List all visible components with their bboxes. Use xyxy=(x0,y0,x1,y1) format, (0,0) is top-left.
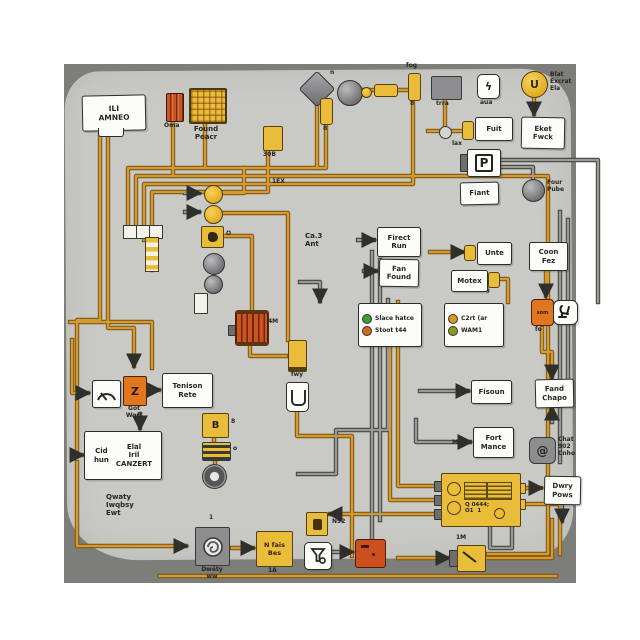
legend2-row2-text: WAM1 xyxy=(461,328,482,334)
legend2-row2: WAM1 xyxy=(448,326,482,336)
seat-icon xyxy=(553,300,578,325)
label-dwry-pows: Dwry Pows xyxy=(544,476,582,506)
finned-heater xyxy=(235,310,269,346)
note-1ex: 1EX xyxy=(272,179,285,186)
label-tenison: Tenison Rete xyxy=(162,373,213,408)
indicator-gray-2 xyxy=(204,275,223,294)
z-module: Z xyxy=(123,376,147,406)
capsule-canister xyxy=(288,340,307,372)
note-lax: lax xyxy=(452,141,462,148)
legend-box-2: C2rt (ar WAM1 xyxy=(444,303,504,347)
motor-icon-top xyxy=(337,80,363,106)
legend1-row2-text: Stoot t44 xyxy=(375,328,407,334)
folder-component xyxy=(263,126,283,151)
striped-resistor-label: Oma xyxy=(164,123,179,130)
gauge-icon xyxy=(92,380,121,408)
olive-dot-icon xyxy=(448,326,458,336)
ecu-grille xyxy=(464,482,512,500)
small-connector-block xyxy=(194,293,208,314)
nfais-label: 1A xyxy=(268,568,277,575)
switch-box xyxy=(457,545,486,572)
label-fiant: Fiant xyxy=(460,182,499,206)
nfais-box: N fais Bes xyxy=(256,531,293,567)
legend1-row1: Slace hatce xyxy=(362,314,414,324)
b-fuse-note: 8 xyxy=(231,419,235,426)
u-indicator-icon: U xyxy=(521,71,548,98)
coil-box-label: Dwéty ww xyxy=(193,567,231,581)
gauge-glyph xyxy=(96,385,117,403)
motor-right-note: Four Pube xyxy=(547,180,564,194)
motor-icon-right xyxy=(522,179,545,202)
swirl-note: Chat 902 Cnho xyxy=(558,437,575,458)
bolt-icon-label: aua xyxy=(480,100,492,107)
relay-gray-box xyxy=(431,76,462,100)
fuse-capsule-2-top-label: fog xyxy=(406,63,417,70)
note-qwaty: Qwaty Iwqbsy Ewt xyxy=(106,493,134,517)
coil-glyph xyxy=(201,535,225,559)
switch-note: 1M xyxy=(456,535,466,542)
mini-module-glyph xyxy=(313,519,322,530)
green-dot-icon xyxy=(362,314,372,324)
ecu-ring-3 xyxy=(494,508,505,519)
ecu-box: Q 0444; O1 1 xyxy=(441,473,521,527)
label-unte: Unte xyxy=(477,242,512,265)
label-canzert: Cid hun Elal Iril CANZERT xyxy=(84,431,162,480)
seat-glyph xyxy=(557,304,574,321)
control-unit-box: ILI AMNEO xyxy=(82,94,147,131)
funnel-glyph xyxy=(309,547,327,565)
note-ca3: Ca.3 Ant xyxy=(305,232,322,248)
fuse-grid-label: Found Peacr xyxy=(185,125,227,141)
legend2-row1-text: C2rt (ar xyxy=(461,316,487,322)
amber-dot-icon xyxy=(448,314,458,324)
switch-glyph xyxy=(458,546,482,568)
label-fand-chapo: Fand Chapo xyxy=(535,379,575,409)
heater-label: 4M xyxy=(268,319,278,326)
label-coon-fez: Coon Fez xyxy=(529,242,568,271)
ecu-grille-divider xyxy=(486,482,488,498)
ecu-ring-2 xyxy=(447,501,461,515)
control-unit-tab xyxy=(98,128,124,137)
striped-resistor xyxy=(166,93,184,122)
z-module-label: Got Wort xyxy=(118,406,150,420)
sensor-blob-glyph xyxy=(208,232,218,242)
sensor-square-note: O xyxy=(226,231,231,238)
sensor-square-icon xyxy=(201,226,224,248)
u-indicator-note: Blat Excrat Ela xyxy=(550,72,571,93)
folder-label: 30B xyxy=(263,152,276,159)
fuse-capsule-1 xyxy=(320,98,333,125)
b-fuse-box: B xyxy=(202,413,229,438)
orange-module-note: fo xyxy=(535,327,542,334)
terminal-dot xyxy=(361,87,372,98)
label-fort-mance: Fort Mance xyxy=(473,427,514,458)
legend-box-1: Slace hatce Stoot t44 xyxy=(358,303,422,347)
ecu-ring-1 xyxy=(447,482,461,496)
fuse-capsule-2 xyxy=(408,73,421,101)
relay-gray-label: trra xyxy=(436,101,449,108)
legend1-row1-text: Slace hatce xyxy=(375,316,414,322)
coil-box xyxy=(195,527,230,566)
unte-fuse xyxy=(464,245,476,261)
vessel-note: fwy xyxy=(291,372,303,379)
canzert-col2: Elal Iril CANZERT xyxy=(116,443,152,468)
grommet-icon xyxy=(202,464,227,489)
diamond-note: n xyxy=(330,70,334,77)
fuse-horizontal xyxy=(374,84,398,97)
fuse-capsule-1-label: 8 xyxy=(323,126,327,133)
vessel-inner xyxy=(291,390,306,406)
mini-module-note: N92 xyxy=(332,519,345,526)
fuse-small-a xyxy=(462,121,474,140)
striped-relay xyxy=(202,442,231,461)
striped-relay-note: o xyxy=(233,446,237,453)
inline-connector xyxy=(145,237,159,272)
spiral-box-top-note: 1 xyxy=(209,515,213,522)
p-flag-glyph: P xyxy=(475,154,494,172)
label-fuit: Fuit xyxy=(475,117,513,141)
fuse-grid-block xyxy=(189,88,227,124)
motex-fuse xyxy=(488,272,500,288)
canzert-col1: Cid hun xyxy=(94,447,109,464)
indicator-yellow-1 xyxy=(204,185,223,204)
orange-dot-icon xyxy=(362,326,372,336)
mini-module xyxy=(306,512,328,536)
p-flag-box: P xyxy=(467,149,501,177)
red-module-mark xyxy=(361,545,369,548)
minus-terminal-icon xyxy=(439,126,452,139)
note-m: M xyxy=(452,440,458,447)
ecu-text: Q 0444; O1 1 xyxy=(465,502,489,515)
bolt-icon: ϟ xyxy=(477,74,500,99)
label-firect-run: Firect Run xyxy=(377,227,421,257)
funnel-icon xyxy=(304,542,332,570)
indicator-gray-1 xyxy=(203,253,225,275)
label-fan-found: Fan Found xyxy=(379,259,419,288)
red-module-mark xyxy=(372,553,375,556)
orange-module-right: som xyxy=(531,299,554,326)
legend1-row2: Stoot t44 xyxy=(362,326,407,336)
terminal-cell xyxy=(124,226,137,238)
label-eket-fwck: Eket Fwck xyxy=(521,117,566,150)
label-fisoun: Fisoun xyxy=(471,380,512,404)
illustration-canvas: ILI AMNEO Oma Found Peacr n 8 fog 8 trra… xyxy=(0,0,640,640)
swirl-icon: @ xyxy=(529,437,556,464)
red-module-bottom xyxy=(355,539,386,568)
legend2-row1: C2rt (ar xyxy=(448,314,487,324)
indicator-yellow-2 xyxy=(204,205,223,224)
vessel-icon xyxy=(286,382,309,412)
label-motex: Motex xyxy=(451,270,488,292)
redbox-note: o- xyxy=(342,549,349,556)
fuse-capsule-2-bottom-label: 8 xyxy=(410,101,414,108)
